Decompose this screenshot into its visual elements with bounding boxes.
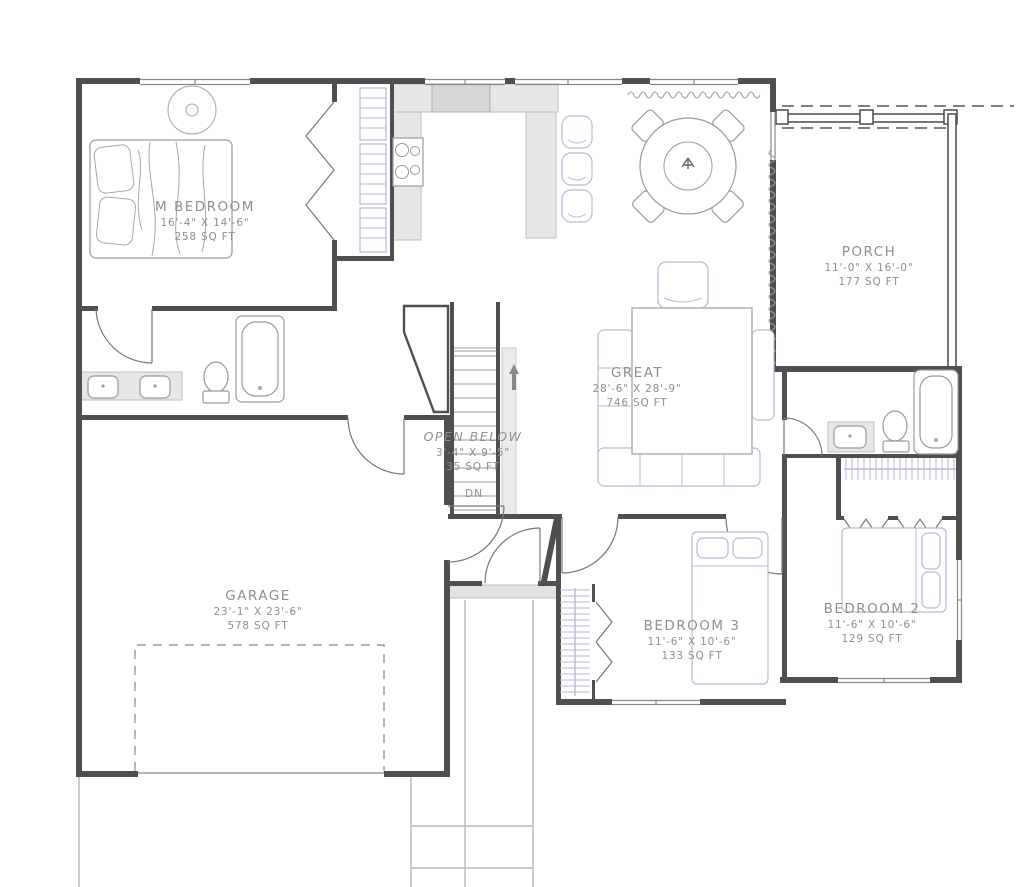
room-area: 129 SQ FT (841, 633, 902, 645)
garland-top (628, 92, 760, 98)
bedroom3-door (562, 517, 618, 573)
bath2-door (784, 418, 822, 456)
room-name: BEDROOM 2 (824, 601, 921, 617)
stairs-dn-label: DN (465, 488, 483, 500)
floor-plan-drawing: M BEDROOM 16'-4" X 14'-6" 258 SQ FT PORC… (0, 0, 1024, 887)
area-rug (632, 308, 752, 454)
refrigerator (432, 84, 490, 112)
room-area: 746 SQ FT (606, 397, 667, 409)
room-name: BEDROOM 3 (644, 618, 741, 634)
bedroom2-bed (842, 528, 946, 612)
bedroom3-closet-clothes (560, 588, 590, 696)
room-dims: 3'-4" X 9'-5" (436, 447, 510, 459)
room-dims: 16'-4" X 14'-6" (161, 217, 250, 229)
porch-post (860, 110, 873, 124)
toilet (883, 411, 907, 441)
room-dims: 28'-6" X 28'-9" (593, 383, 682, 395)
master-closet-shelving (360, 88, 386, 252)
front-door (485, 528, 540, 583)
room-label-bedroom2: BEDROOM 2 11'-6" X 10'-6" 129 SQ FT (824, 601, 921, 645)
room-name: OPEN BELOW (424, 429, 523, 444)
bath2-fixtures (834, 370, 958, 454)
room-name: GARAGE (225, 588, 291, 604)
sectional-sofa-left (598, 330, 634, 462)
driveway-walkway-lines (79, 600, 533, 887)
entry-stoop (448, 585, 558, 598)
room-label-garage: GARAGE 23'-1" X 23'-6" 578 SQ FT (214, 588, 303, 632)
porch-side-wall (948, 114, 956, 368)
garage-entry-door (348, 418, 404, 474)
room-area: 133 SQ FT (661, 650, 722, 662)
room-dims: 11'-6" X 10'-6" (828, 619, 917, 631)
stair-angled-wall (404, 306, 448, 412)
porch-structure (776, 106, 1014, 368)
dining-set (630, 108, 745, 224)
room-area: 177 SQ FT (838, 276, 899, 288)
bedroom3-closet-bifold (596, 602, 612, 682)
room-name: M BEDROOM (155, 199, 255, 215)
chaise (752, 330, 774, 420)
master-closet-bifold (306, 102, 334, 240)
room-dims: 23'-1" X 23'-6" (214, 606, 303, 618)
floor-plan-canvas: M BEDROOM 16'-4" X 14'-6" 258 SQ FT PORC… (0, 0, 1024, 887)
room-dims: 11'-0" X 16'-0" (825, 262, 914, 274)
bedroom2-closet-clothes (844, 458, 956, 480)
room-name: PORCH (842, 244, 897, 260)
room-area: 258 SQ FT (174, 231, 235, 243)
ceiling-fan (168, 86, 216, 134)
room-area: 578 SQ FT (227, 620, 288, 632)
room-area: 35 SQ FT (446, 461, 500, 473)
armchair (658, 262, 708, 308)
room-name: GREAT (611, 365, 663, 381)
master-bath-fixtures (88, 316, 284, 403)
toilet (204, 362, 228, 392)
room-dims: 11'-6" X 10'-6" (648, 636, 737, 648)
master-bath-door (96, 309, 152, 363)
room-label-porch: PORCH 11'-0" X 16'-0" 177 SQ FT (825, 244, 914, 288)
garage-overhead-door (135, 645, 384, 771)
bar-stools (562, 116, 592, 222)
porch-post (776, 110, 788, 124)
kitchen-fixtures (393, 116, 592, 222)
